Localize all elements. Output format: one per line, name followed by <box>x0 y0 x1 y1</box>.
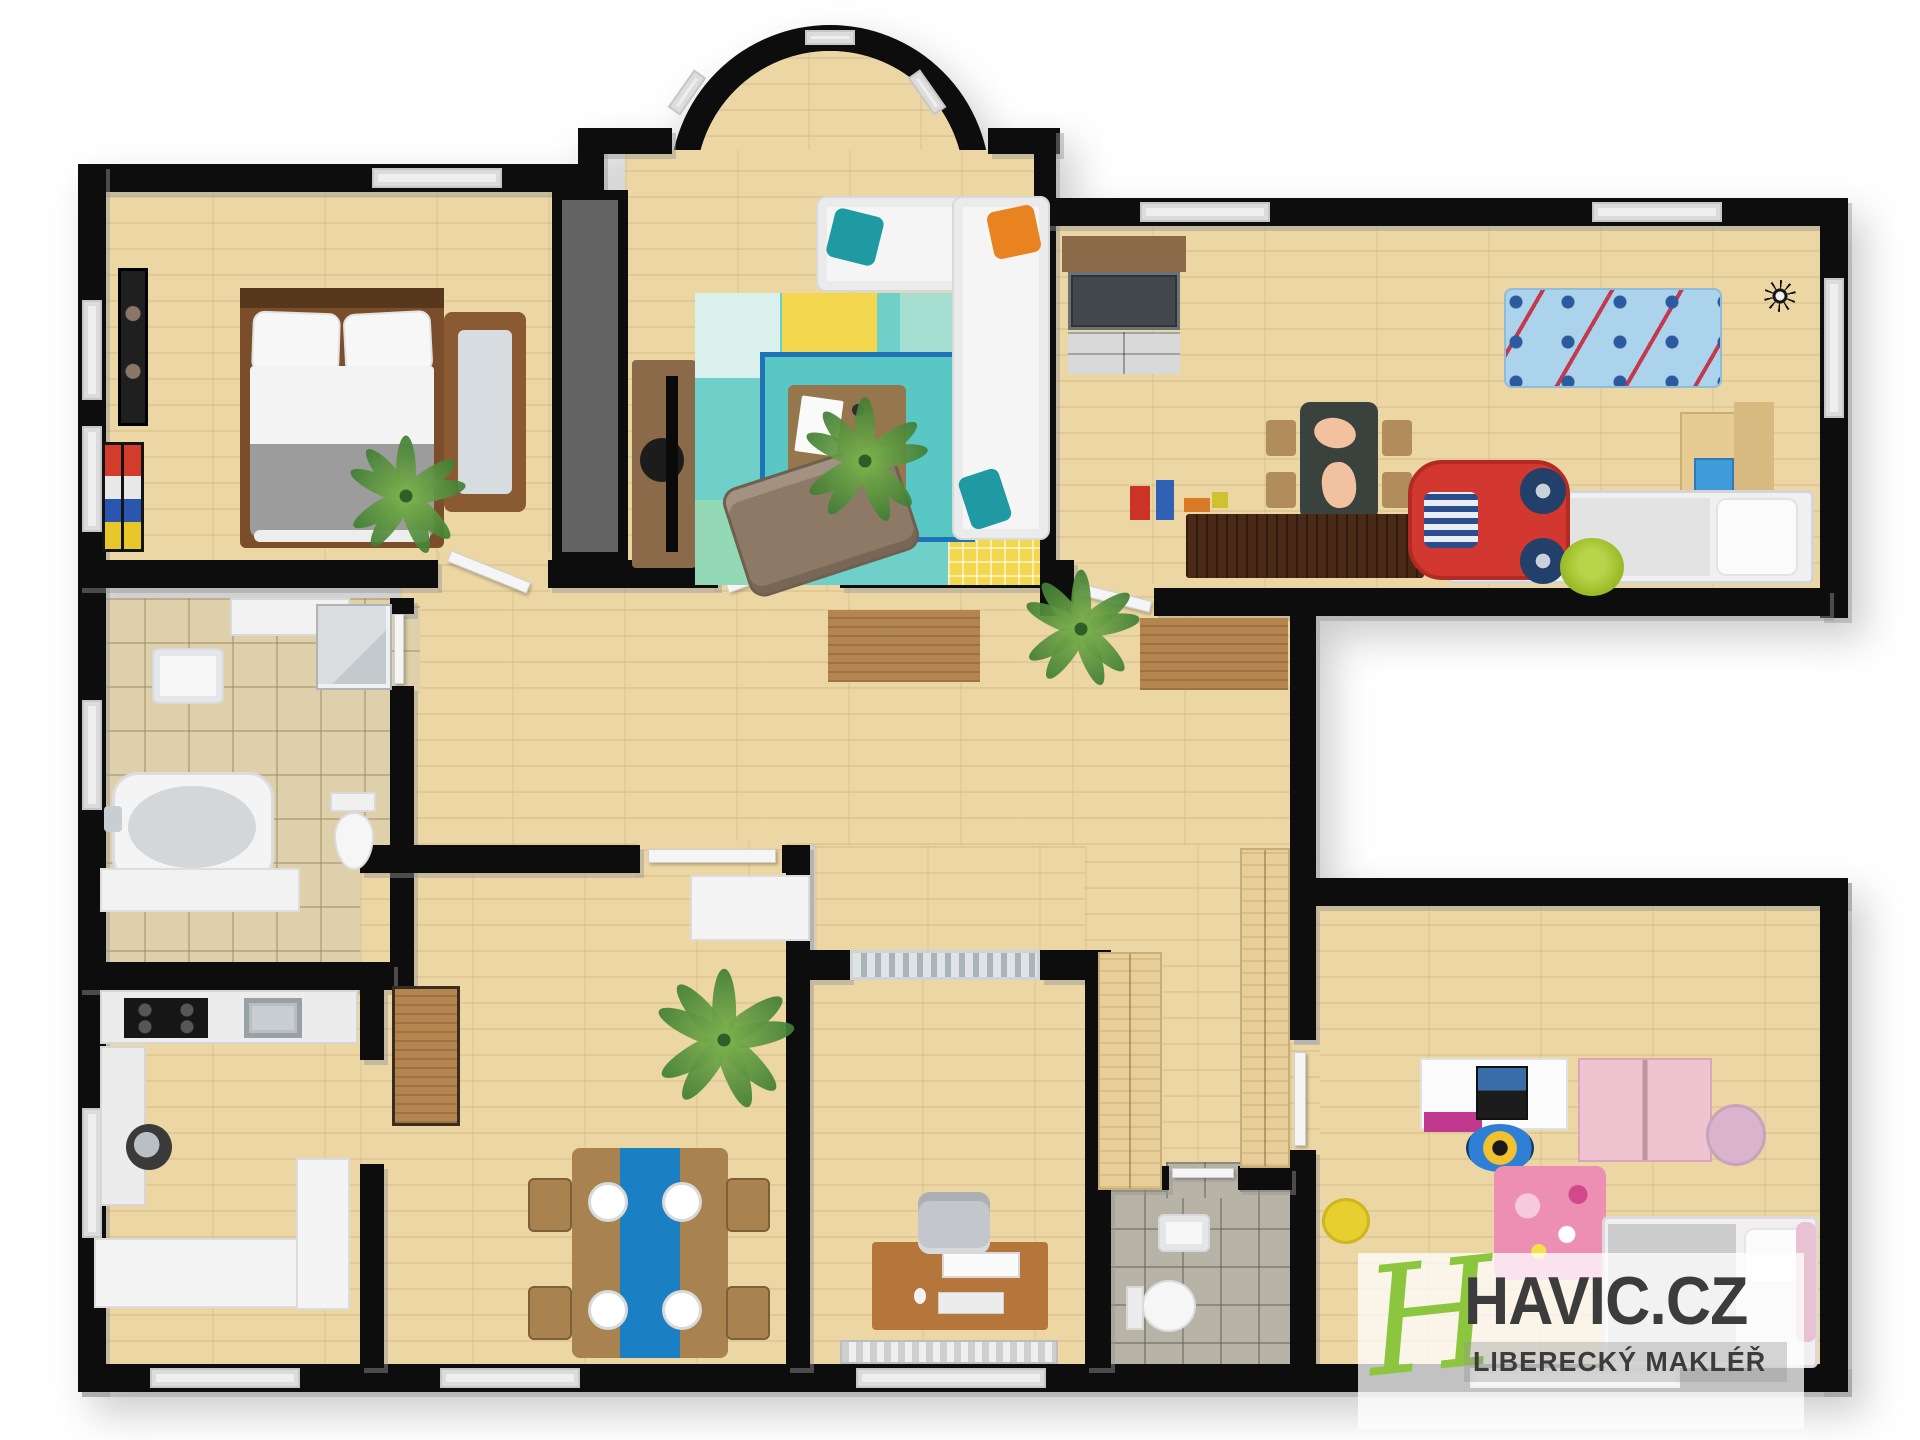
dining-top-wall-b <box>782 845 810 873</box>
office-top-wall-b <box>1040 950 1085 980</box>
office-chair <box>918 1192 990 1254</box>
dining-office-wall <box>786 873 810 1368</box>
wc-toilet-bowl <box>1142 1280 1196 1332</box>
office-radiator <box>840 1340 1058 1364</box>
watermark-text: HAVIC.CZ LIBERECKÝ MAKLÉŘ <box>1464 1267 1796 1382</box>
girls-desk-drawers <box>1424 1112 1482 1132</box>
laptop <box>1476 1066 1528 1120</box>
palm-trunk <box>400 490 413 503</box>
toilet-tank <box>330 792 376 812</box>
corridor-wardrobe-2 <box>1240 848 1290 1168</box>
kids-right-window <box>1824 278 1844 418</box>
tagline-band: LIBERECKÝ MAKLÉŘ <box>1464 1342 1787 1382</box>
kids-chair-3 <box>1382 420 1412 456</box>
office-bottom-window <box>856 1368 1046 1388</box>
sailboat-sofa <box>1504 288 1722 388</box>
plate-4 <box>662 1290 702 1330</box>
plate-2 <box>662 1182 702 1222</box>
hall-sideboard-1 <box>828 610 980 682</box>
girls-desk-chair <box>1466 1124 1534 1172</box>
girls-top-wall <box>1316 878 1848 906</box>
bedroom-mondrian-cabinet <box>102 442 144 552</box>
dining-cabinet <box>690 875 810 941</box>
kitchen-island-right <box>296 1158 350 1310</box>
bathroom-counter <box>100 868 300 912</box>
toy-block-orange <box>1184 498 1210 512</box>
bathroom-bottom-wall <box>78 962 394 990</box>
car-rug-wheel-2 <box>1520 538 1566 584</box>
kids-desk-paper <box>1694 458 1734 494</box>
hall-east-wall <box>1290 616 1316 1040</box>
monitor <box>942 1252 1020 1278</box>
wc-top-wall-b <box>1238 1166 1292 1190</box>
kids-cabinet-drawers <box>1068 332 1180 374</box>
bedroom-photo-frame <box>118 268 148 426</box>
kids-chair-1 <box>1266 420 1296 456</box>
dining-chair-3 <box>726 1178 770 1232</box>
plate-3 <box>588 1290 628 1330</box>
crib-mattress <box>458 330 512 494</box>
bathroom-sink <box>152 648 224 704</box>
dining-top-wall-a <box>360 845 640 873</box>
bay-window-top <box>805 30 855 45</box>
bedroom-wardrobe <box>552 190 628 562</box>
dining-chair-2 <box>528 1286 572 1340</box>
toy-block-yellow <box>1212 492 1228 508</box>
plate-1 <box>588 1182 628 1222</box>
bathroom-left-window <box>82 700 102 810</box>
car-rug-window <box>1424 492 1478 548</box>
kitchen-bottom-window <box>150 1368 300 1388</box>
palm-trunk <box>718 1034 731 1047</box>
sofa-pillow-orange <box>986 204 1043 261</box>
wall-clock <box>1764 280 1796 312</box>
dining-plant <box>658 974 790 1106</box>
living-top-wall-left <box>600 128 672 154</box>
dining-door <box>648 849 776 863</box>
office-top-wall-a <box>810 950 850 980</box>
hall-plant <box>1026 574 1136 684</box>
dining-chair-1 <box>528 1178 572 1232</box>
bedroom-top-wall <box>78 164 578 192</box>
bathroom-door <box>394 614 404 684</box>
green-pouf <box>1560 538 1624 596</box>
kids-bottom-wall-b <box>1154 588 1830 616</box>
kitchen-left-window <box>82 1108 102 1238</box>
palm-trunk <box>1075 623 1088 636</box>
kids-cabinet-glass <box>1068 272 1180 330</box>
dining-bench <box>392 986 460 1126</box>
hall-sideboard-2 <box>1140 618 1288 690</box>
dining-bottom-window <box>440 1368 580 1388</box>
bedroom-left-window-2 <box>82 426 102 532</box>
bedroom-left-window <box>82 300 102 400</box>
hall-top-wall-a <box>78 560 438 588</box>
kitchen-right-wall-b <box>360 1164 384 1368</box>
cooktop <box>124 998 208 1038</box>
kids-top-window-2 <box>1592 202 1722 222</box>
double-bed-headboard <box>240 288 444 308</box>
bathtub-basin <box>128 786 256 868</box>
bathroom-right-wall-a <box>390 598 414 614</box>
toy-block-red <box>1130 486 1150 520</box>
kids-dresser <box>1186 514 1424 578</box>
floor-plan <box>0 0 1920 1440</box>
girls-door <box>1294 1052 1306 1146</box>
kitchen-sink <box>244 998 302 1038</box>
mouse <box>914 1288 926 1304</box>
toy-block-blue <box>1156 480 1174 520</box>
brand-tagline: LIBERECKÝ MAKLÉŘ <box>1473 1346 1766 1378</box>
car-rug-wheel-1 <box>1520 468 1566 514</box>
dining-chair-4 <box>726 1286 770 1340</box>
trash-bin <box>126 1124 172 1170</box>
girls-right-wall <box>1820 878 1848 1392</box>
hall-pocket-floor <box>815 845 1085 952</box>
keyboard <box>938 1292 1004 1314</box>
living-plant <box>806 402 924 520</box>
bedroom-top-window <box>372 168 502 188</box>
bathroom-right-wall-b <box>390 686 414 990</box>
bathtub-faucet <box>104 806 122 832</box>
shower <box>316 604 392 690</box>
girls-wardrobe <box>1578 1058 1712 1162</box>
wc-sink <box>1158 1214 1210 1252</box>
brand-name: HAVIC.CZ <box>1464 1267 1769 1336</box>
kitchen-right-wall-a <box>360 990 384 1060</box>
corridor-wardrobe-1 <box>1098 952 1162 1190</box>
girls-left-wall <box>1290 1150 1316 1368</box>
office-glass-door <box>850 950 1040 980</box>
kids-cabinet-top <box>1062 236 1186 272</box>
kids-bed-pillow <box>1716 498 1798 576</box>
kids-chair-2 <box>1266 472 1296 508</box>
palm-trunk <box>859 455 872 468</box>
girls-pouf <box>1706 1104 1766 1166</box>
wc-door <box>1172 1168 1234 1178</box>
bedroom-plant <box>350 440 462 552</box>
tv-screen <box>666 376 678 552</box>
kids-top-window <box>1140 202 1270 222</box>
watermark: H HAVIC.CZ LIBERECKÝ MAKLÉŘ <box>1358 1253 1804 1429</box>
